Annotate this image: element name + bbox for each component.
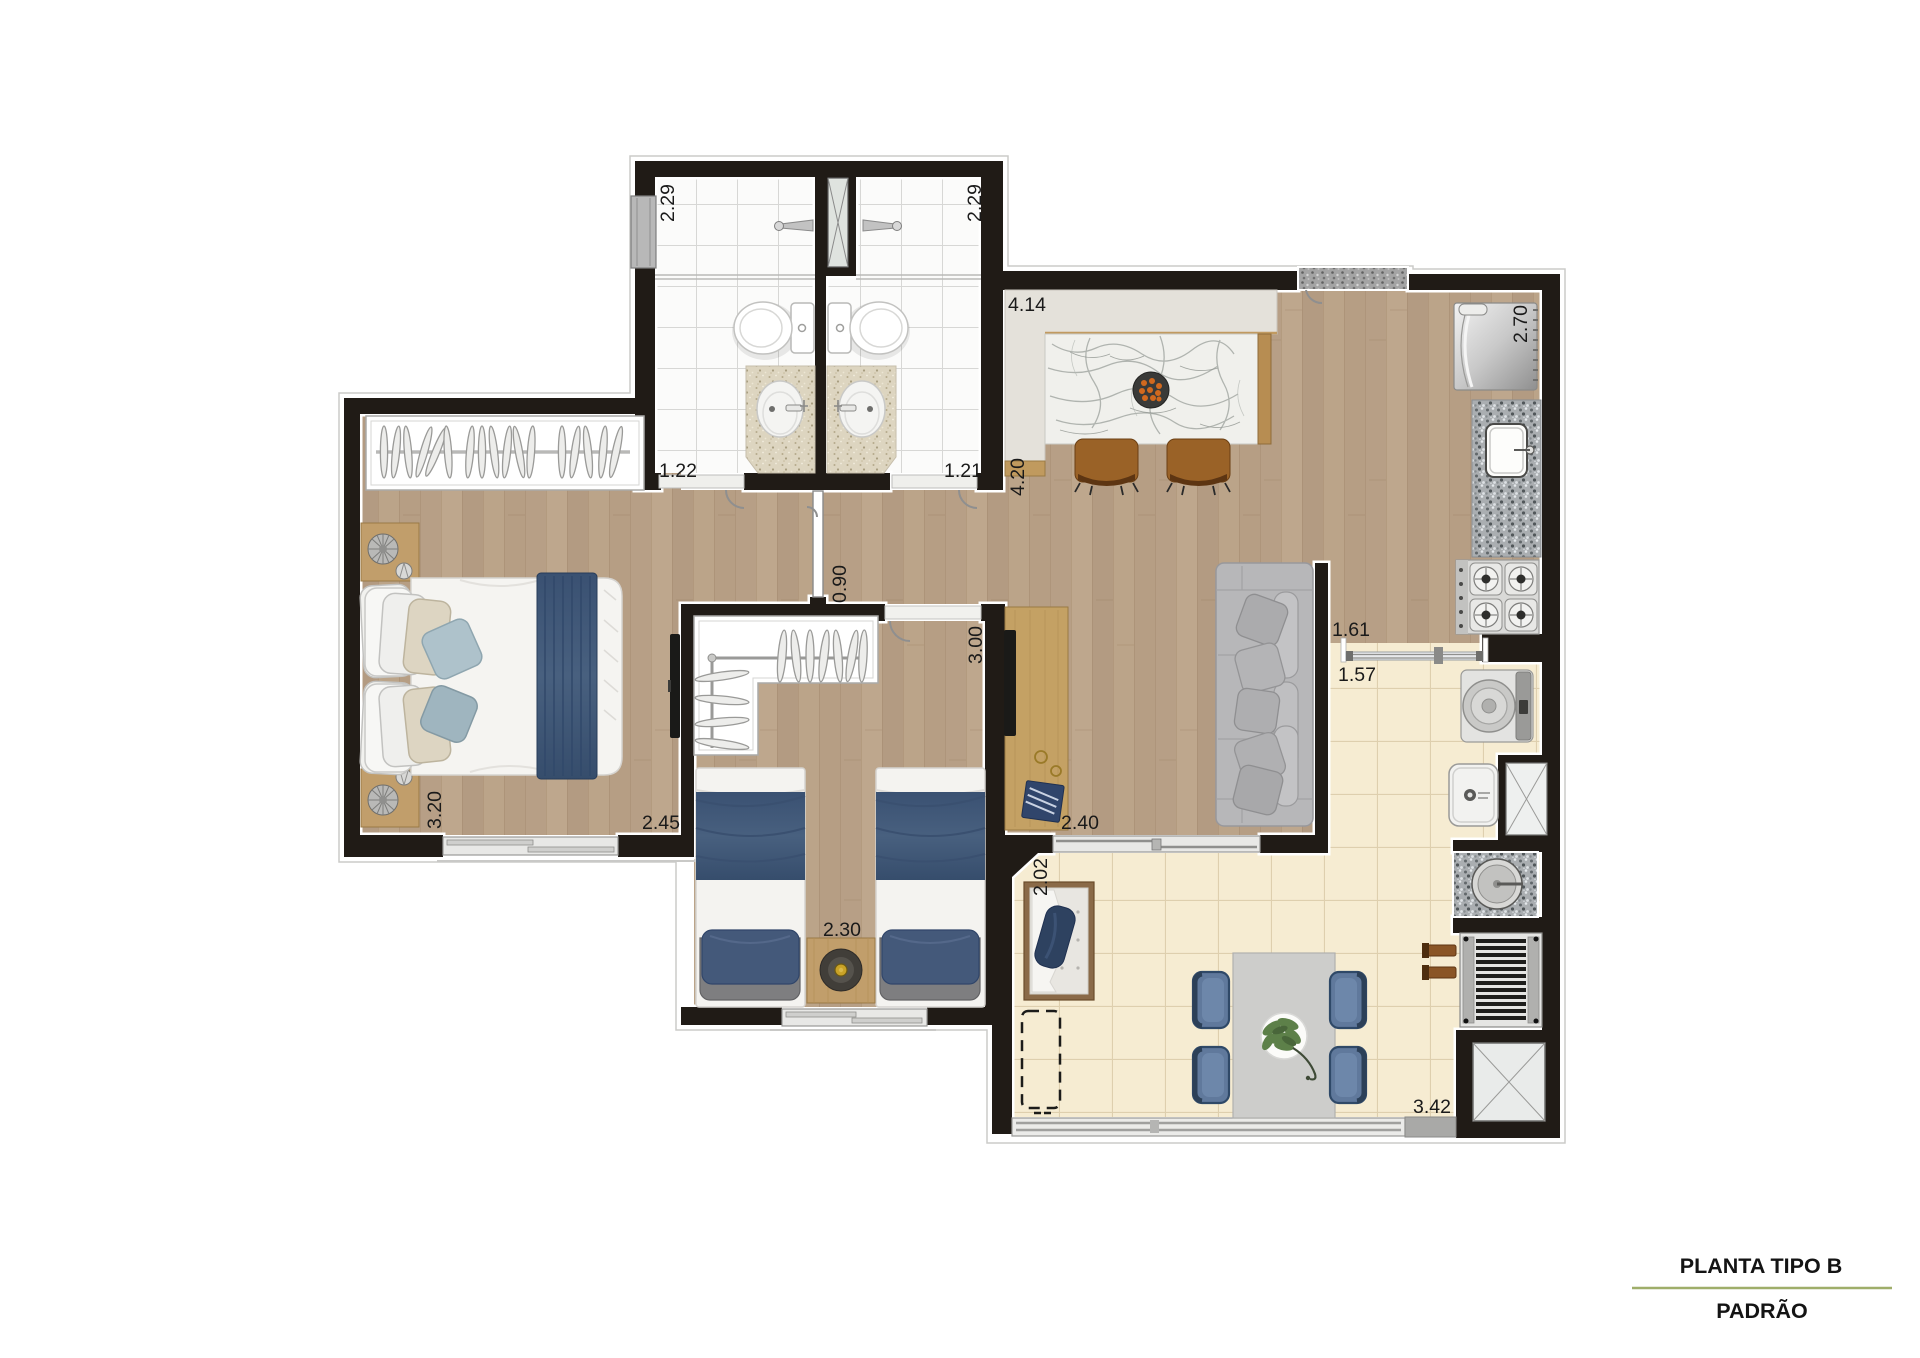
svg-text:2.29: 2.29 [657,184,679,222]
svg-text:0.90: 0.90 [829,565,851,603]
svg-text:2.40: 2.40 [1061,812,1099,834]
svg-text:2.29: 2.29 [964,184,986,222]
svg-text:2.02: 2.02 [1030,858,1052,896]
svg-text:1.21: 1.21 [944,460,982,482]
svg-text:1.61: 1.61 [1332,619,1370,641]
svg-text:PLANTA TIPO B: PLANTA TIPO B [1680,1254,1842,1278]
svg-text:4.20: 4.20 [1007,458,1029,496]
svg-text:2.30: 2.30 [823,919,861,941]
svg-text:PADRÃO: PADRÃO [1716,1298,1808,1323]
svg-text:2.70: 2.70 [1510,305,1532,343]
svg-text:1.22: 1.22 [659,460,697,482]
svg-text:3.20: 3.20 [424,791,446,829]
svg-text:1.57: 1.57 [1338,664,1376,686]
svg-text:2.45: 2.45 [642,812,680,834]
svg-text:4.14: 4.14 [1008,294,1046,316]
svg-text:3.42: 3.42 [1413,1096,1451,1118]
svg-text:3.00: 3.00 [965,626,987,664]
